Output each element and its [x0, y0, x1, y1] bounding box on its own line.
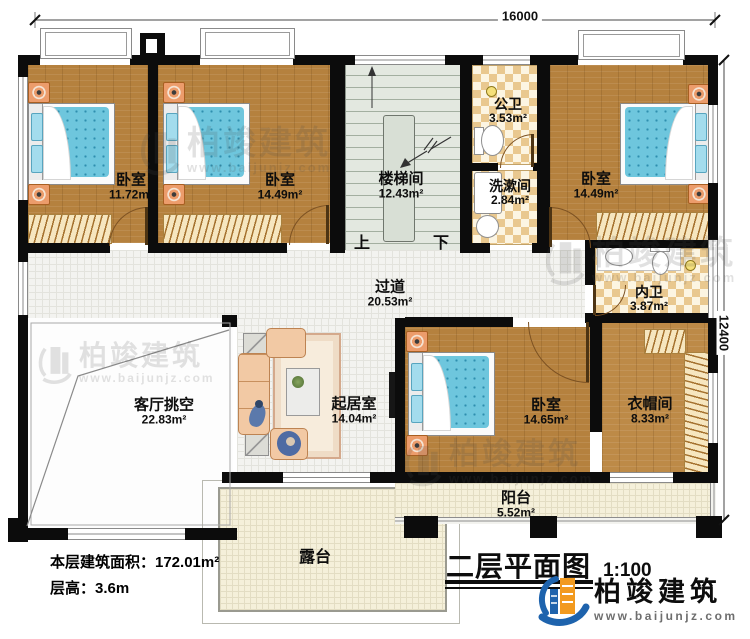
bay-window [40, 28, 132, 59]
wall-segment [532, 243, 550, 253]
nightstand [406, 435, 428, 456]
window [708, 240, 718, 318]
wall-segment [18, 55, 28, 77]
wall-segment [585, 253, 595, 285]
room-label-washroom: 洗漱间2.84m² [489, 178, 531, 208]
door-leaf [145, 207, 148, 245]
light-fixture [685, 260, 696, 271]
room-label-bedroom-1: 卧室11.72m² [109, 171, 153, 202]
wall-segment [460, 55, 472, 253]
room-label-balcony: 阳台5.52m² [497, 489, 535, 520]
pillow [411, 363, 423, 391]
window [708, 105, 718, 183]
door-leaf [593, 285, 596, 315]
wall-segment [673, 472, 718, 483]
wall-segment [395, 318, 405, 473]
room-label-bedroom-3: 卧室14.49m² [574, 170, 619, 201]
wall-segment [405, 317, 513, 327]
door-leaf [326, 205, 329, 244]
brand-url: www.baijunjz.com [594, 609, 738, 623]
nightstand [688, 84, 710, 104]
window [68, 528, 185, 540]
dimension-width: 16000 [498, 9, 542, 24]
window [708, 373, 718, 443]
pillow [695, 145, 707, 173]
nightstand [163, 82, 185, 103]
pillow [166, 113, 178, 141]
end-table [245, 433, 269, 456]
room-label-hallway: 过道20.53m² [368, 278, 413, 309]
wall-segment [18, 243, 110, 253]
nightstand [688, 184, 710, 204]
armchair [266, 328, 306, 358]
pillow [166, 145, 178, 173]
person-figure-head [255, 400, 263, 408]
coffee-table [286, 368, 320, 416]
balcony-post [696, 516, 722, 538]
toilet [481, 125, 504, 156]
bay-window [578, 30, 685, 60]
wall-segment [370, 472, 610, 483]
nightstand [28, 184, 50, 205]
wall-pier [222, 315, 237, 327]
floor-area-text: 本层建筑面积：172.01m² [50, 551, 219, 572]
wall-segment [293, 55, 355, 65]
room-label-cloakroom: 衣帽间8.33m² [627, 395, 672, 426]
nightstand [163, 184, 185, 205]
nightstand [28, 82, 50, 103]
wall-segment [595, 240, 708, 248]
balcony-post [404, 516, 438, 538]
bay-window-glass [205, 32, 290, 56]
pillow [695, 113, 707, 141]
wall-segment [18, 315, 28, 528]
stair-down-label: 下 [433, 229, 449, 253]
bed [620, 103, 710, 185]
room-label-bedroom-2: 卧室14.49m² [258, 171, 303, 202]
wardrobe [28, 214, 112, 244]
room-label-living-void: 客厅挑空22.83m² [134, 396, 194, 427]
window [18, 262, 28, 315]
bed [28, 103, 115, 185]
nightstand [406, 331, 428, 352]
room-label-public-bath: 公卫3.53m² [489, 96, 527, 126]
sliding-door [610, 472, 673, 483]
brand-name: 柏竣建筑 [594, 578, 738, 606]
wall-segment [588, 317, 602, 327]
pillow [31, 145, 43, 173]
sliding-door [283, 472, 370, 483]
room-label-inner-bath: 内卫3.87m² [630, 284, 668, 314]
bed [163, 103, 250, 185]
bay-window-glass [45, 32, 127, 56]
sink [605, 247, 633, 266]
wall-segment [460, 243, 490, 253]
brand-text-block: 柏竣建筑 www.baijunjz.com [594, 578, 738, 623]
wall-segment [185, 528, 237, 540]
sink [476, 215, 499, 238]
wall-segment [330, 55, 345, 253]
floor-height-text: 层高：3.6m [50, 577, 129, 598]
room-label-terrace: 露台 [299, 549, 331, 567]
person-figure-head [286, 437, 295, 446]
chimney-flue [146, 39, 157, 53]
cloakroom-shelf [684, 352, 710, 475]
room-label-sitting-room: 起居室14.04m² [331, 395, 376, 426]
plant [292, 376, 304, 388]
door-leaf [531, 134, 534, 167]
wardrobe [163, 214, 282, 244]
wall-segment [472, 163, 498, 171]
bay-window [200, 28, 295, 59]
wall-segment [222, 472, 283, 483]
window [18, 77, 28, 200]
wall-segment [18, 528, 68, 540]
wall-segment [708, 183, 718, 240]
wardrobe [596, 212, 710, 242]
pillow [31, 113, 43, 141]
window [355, 55, 445, 65]
stair-up-label: 上 [354, 229, 370, 253]
door-leaf [549, 207, 552, 247]
room-label-stairwell: 楼梯间12.43m² [378, 170, 423, 201]
bay-window-glass [583, 34, 680, 57]
cloakroom-shelf [644, 329, 686, 354]
dimension-height: 12400 [717, 311, 732, 355]
toilet [652, 251, 669, 275]
pillow [411, 395, 423, 423]
wall-segment [708, 58, 718, 105]
wall-segment [148, 55, 158, 253]
bed [408, 352, 495, 436]
brand-logo-icon [536, 574, 590, 631]
window [483, 55, 530, 65]
door-leaf [586, 322, 589, 382]
balcony-floor [395, 483, 715, 518]
hallway-floor [28, 250, 585, 318]
wall-segment [148, 243, 287, 253]
room-label-bedroom-4: 卧室14.65m² [524, 396, 569, 427]
wall-segment [590, 325, 602, 432]
floor-plan-canvas: 16000 12400 卧室11.72m² 卧室14.49m² 楼梯间12.43… [0, 0, 750, 639]
